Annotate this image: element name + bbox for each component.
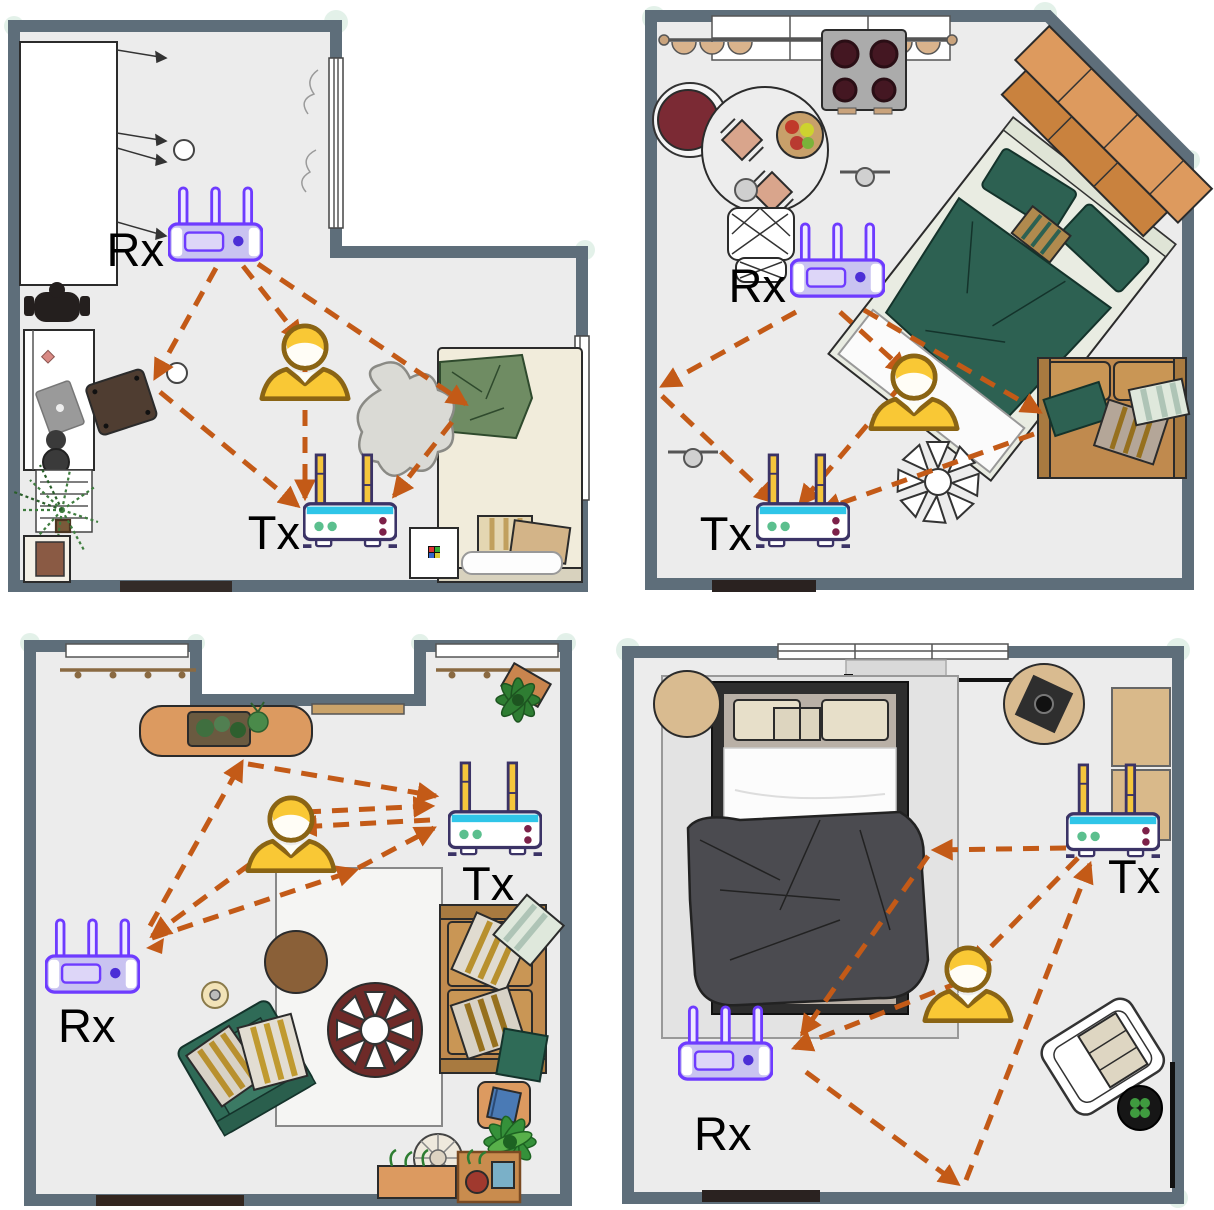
door-threshold bbox=[702, 1190, 820, 1202]
storage-box bbox=[24, 536, 70, 582]
fan bbox=[898, 442, 979, 523]
blanket bbox=[440, 355, 532, 438]
ceiling-light bbox=[167, 363, 187, 383]
coffee-table bbox=[265, 931, 327, 993]
pillow bbox=[496, 1029, 547, 1082]
stove bbox=[822, 30, 906, 114]
door-threshold bbox=[712, 580, 816, 592]
sofa bbox=[440, 895, 564, 1082]
figure-floorplans: Rx Tx bbox=[0, 0, 1214, 1210]
robot-vacuum bbox=[1118, 1086, 1162, 1130]
bed bbox=[688, 682, 928, 1014]
ceiling-light bbox=[174, 140, 194, 160]
rx-label: Rx bbox=[58, 999, 115, 1052]
fruit-bowl bbox=[777, 112, 823, 158]
rx-label: Rx bbox=[694, 1107, 751, 1160]
room-top-left: Rx Tx bbox=[14, 26, 589, 592]
bedside-table bbox=[654, 671, 720, 737]
rx-router-icon bbox=[791, 224, 884, 296]
sofa bbox=[1038, 358, 1189, 478]
pillow bbox=[800, 708, 820, 740]
rx-router-icon bbox=[679, 1007, 772, 1079]
speaker bbox=[1004, 664, 1084, 744]
room-bottom-left: Rx Tx bbox=[30, 644, 566, 1206]
door-threshold bbox=[96, 1195, 244, 1206]
nightstand bbox=[410, 528, 458, 578]
rx-label: Rx bbox=[729, 259, 786, 312]
coaster bbox=[202, 982, 228, 1008]
pillow bbox=[774, 708, 802, 740]
round-armchair bbox=[328, 983, 422, 1077]
tx-label: Tx bbox=[248, 506, 300, 559]
rx-router-icon bbox=[46, 920, 139, 992]
room-bottom-right: Rx Tx bbox=[628, 644, 1178, 1202]
pillow bbox=[822, 700, 888, 740]
rx-router-icon bbox=[169, 188, 262, 260]
desk bbox=[24, 330, 94, 475]
rx-label: Rx bbox=[107, 223, 164, 276]
room-top-right: Rx Tx bbox=[651, 16, 1212, 592]
tx-label: Tx bbox=[462, 857, 514, 910]
door-threshold bbox=[120, 581, 232, 592]
tx-label: Tx bbox=[700, 507, 752, 560]
wall-trim bbox=[1170, 1062, 1175, 1188]
tx-label: Tx bbox=[1108, 850, 1160, 903]
